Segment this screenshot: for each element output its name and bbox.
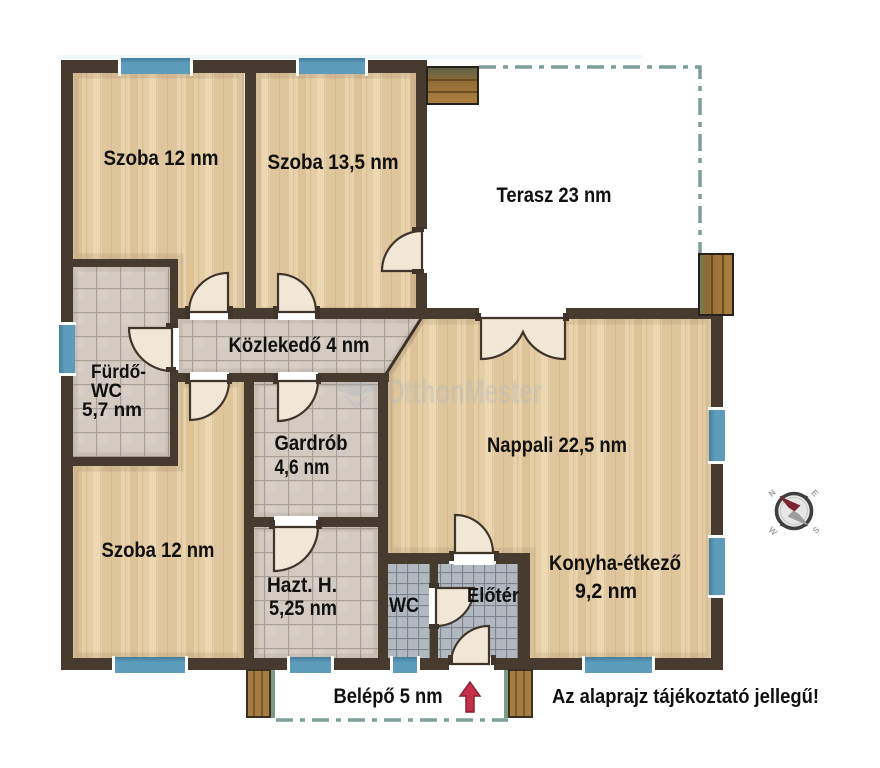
svg-text:Szoba 12 nm: Szoba 12 nm — [102, 539, 215, 562]
svg-text:9,2 nm: 9,2 nm — [575, 580, 637, 603]
svg-text:WC: WC — [91, 381, 122, 402]
svg-text:Fürdő-: Fürdő- — [91, 362, 146, 383]
svg-text:Hazt. H.: Hazt. H. — [267, 574, 337, 597]
svg-text:Az alaprajz tájékoztató jelleg: Az alaprajz tájékoztató jellegű! — [552, 686, 819, 708]
svg-text:5,7 nm: 5,7 nm — [82, 400, 142, 421]
svg-text:Gardrób: Gardrób — [275, 432, 348, 455]
svg-text:5,25 nm: 5,25 nm — [269, 597, 337, 620]
svg-text:Előtér: Előtér — [467, 585, 519, 607]
svg-text:Belépő 5 nm: Belépő 5 nm — [334, 685, 443, 708]
svg-text:Nappali 22,5 nm: Nappali 22,5 nm — [487, 434, 627, 457]
svg-text:Terasz 23 nm: Terasz 23 nm — [497, 184, 612, 207]
svg-text:4,6 nm: 4,6 nm — [275, 456, 330, 479]
svg-text:Konyha-étkező: Konyha-étkező — [549, 552, 681, 575]
svg-text:Szoba 13,5 nm: Szoba 13,5 nm — [268, 151, 399, 174]
svg-text:Közlekedő 4 nm: Közlekedő 4 nm — [229, 334, 370, 357]
svg-text:WC: WC — [389, 594, 419, 617]
svg-text:Szoba 12 nm: Szoba 12 nm — [104, 147, 219, 170]
svg-text:OtthonMester: OtthonMester — [386, 373, 542, 411]
